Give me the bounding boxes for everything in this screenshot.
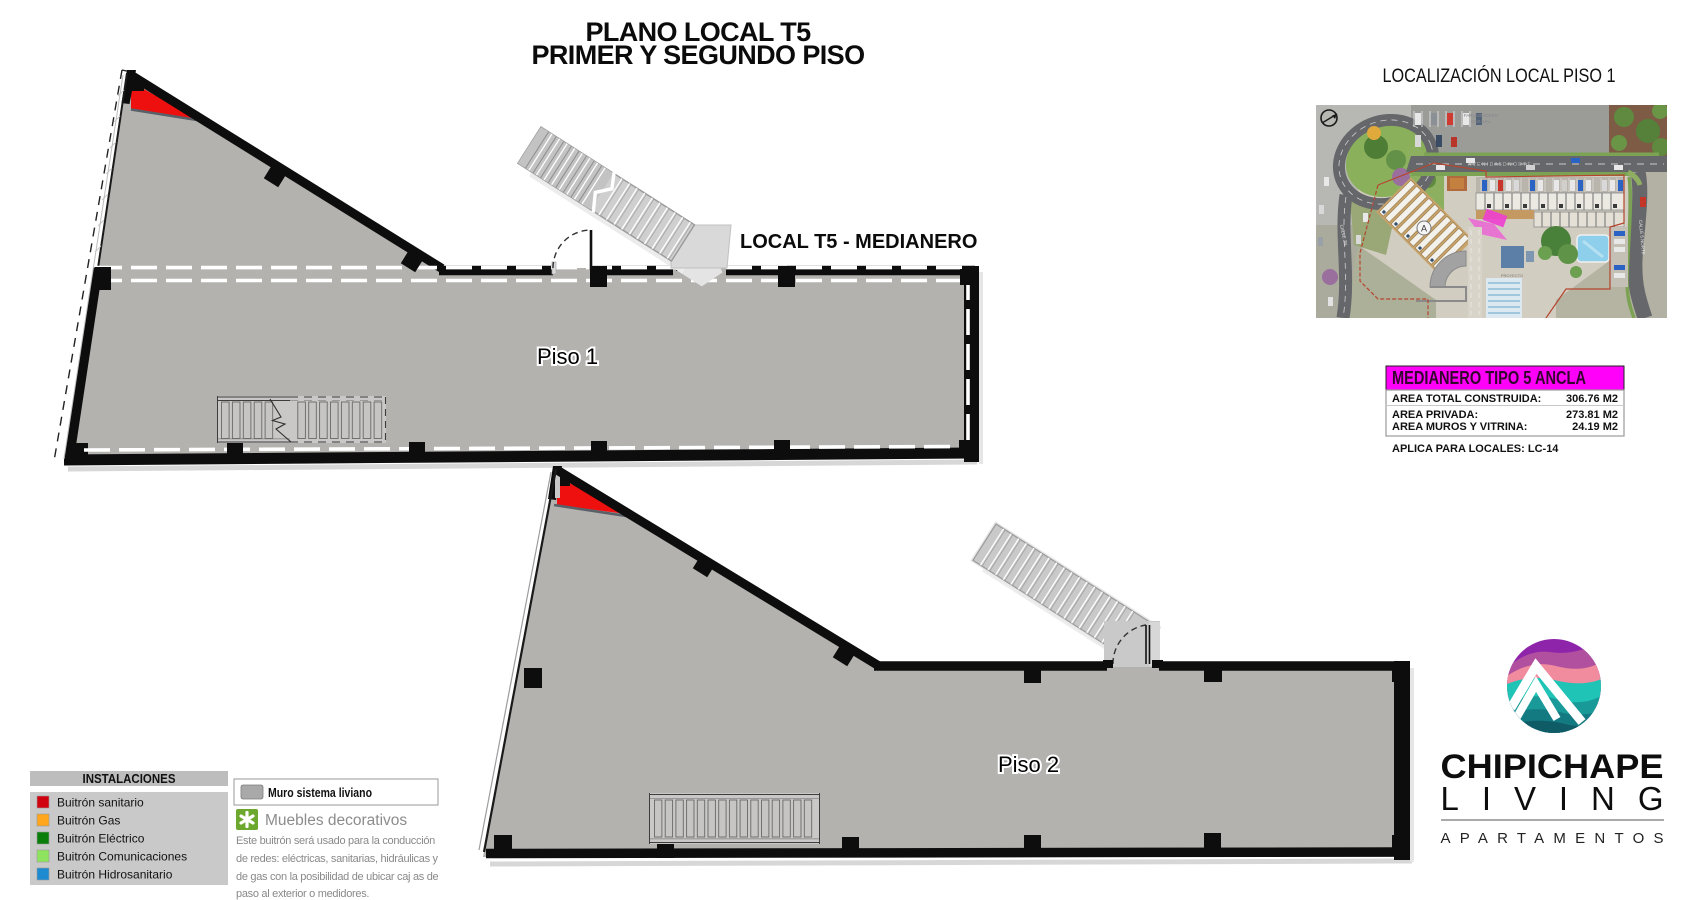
svg-text:AREA PRIVADA:: AREA PRIVADA: [1392, 409, 1478, 421]
svg-text:Muro sistema liviano: Muro sistema liviano [268, 786, 372, 800]
svg-text:AREA MUROS Y VITRINA:: AREA MUROS Y VITRINA: [1392, 421, 1527, 433]
svg-text:Buitrón Comunicaciones: Buitrón Comunicaciones [57, 850, 187, 864]
svg-text:AREA TOTAL CONSTRUIDA:: AREA TOTAL CONSTRUIDA: [1392, 393, 1541, 405]
svg-text:24.19 M2: 24.19 M2 [1572, 421, 1618, 433]
svg-text:Buitrón Gas: Buitrón Gas [57, 814, 120, 828]
svg-text:LOCAL T5 - MEDIANERO: LOCAL T5 - MEDIANERO [740, 231, 977, 253]
svg-text:306.76 M2: 306.76 M2 [1566, 393, 1618, 405]
svg-text:PARQUEADERO: PARQUEADERO [1464, 113, 1499, 118]
svg-text:A V E N I D A 5 D N O R T: A V E N I D A 5 D N O R T E [1468, 162, 1532, 168]
svg-text:CARAVAL: CARAVAL [1471, 119, 1492, 124]
svg-text:A: A [1421, 224, 1427, 234]
svg-text:Buitrón sanitario: Buitrón sanitario [57, 796, 144, 810]
svg-text:PROYECTO: PROYECTO [1501, 273, 1523, 278]
svg-text:APLICA PARA LOCALES: LC-14: APLICA PARA LOCALES: LC-14 [1392, 443, 1559, 455]
svg-text:PRIMER Y SEGUNDO PISO: PRIMER Y SEGUNDO PISO [532, 40, 865, 70]
svg-text:Piso 2: Piso 2 [998, 752, 1059, 777]
svg-text:paso al exterior o medidores.: paso al exterior o medidores. [236, 888, 369, 900]
svg-text:273.81 M2: 273.81 M2 [1566, 409, 1618, 421]
svg-text:de redes: eléctricas, sanitar: de redes: eléctricas, sanitarias, hidráu… [236, 853, 439, 865]
svg-text:Buitrón Eléctrico: Buitrón Eléctrico [57, 832, 145, 846]
svg-text:CHIPICHAPE: CHIPICHAPE [1441, 748, 1664, 786]
svg-text:MEDIANERO TIPO 5 ANCLA: MEDIANERO TIPO 5 ANCLA [1392, 367, 1586, 388]
svg-text:INSTALACIONES: INSTALACIONES [83, 771, 176, 786]
svg-text:Muebles decorativos: Muebles decorativos [265, 812, 407, 829]
svg-text:Piso 1: Piso 1 [537, 344, 598, 369]
svg-text:Este buitrón será usado para l: Este buitrón será usado para la conducci… [236, 835, 435, 847]
svg-text:LOCALIZACIÓN LOCAL PISO 1: LOCALIZACIÓN LOCAL PISO 1 [1383, 65, 1616, 87]
svg-text:Buitrón Hidrosanitario: Buitrón Hidrosanitario [57, 868, 173, 882]
svg-text:de gas con la posibilidad de u: de gas con la posibilidad de ubicar caj … [236, 871, 439, 883]
